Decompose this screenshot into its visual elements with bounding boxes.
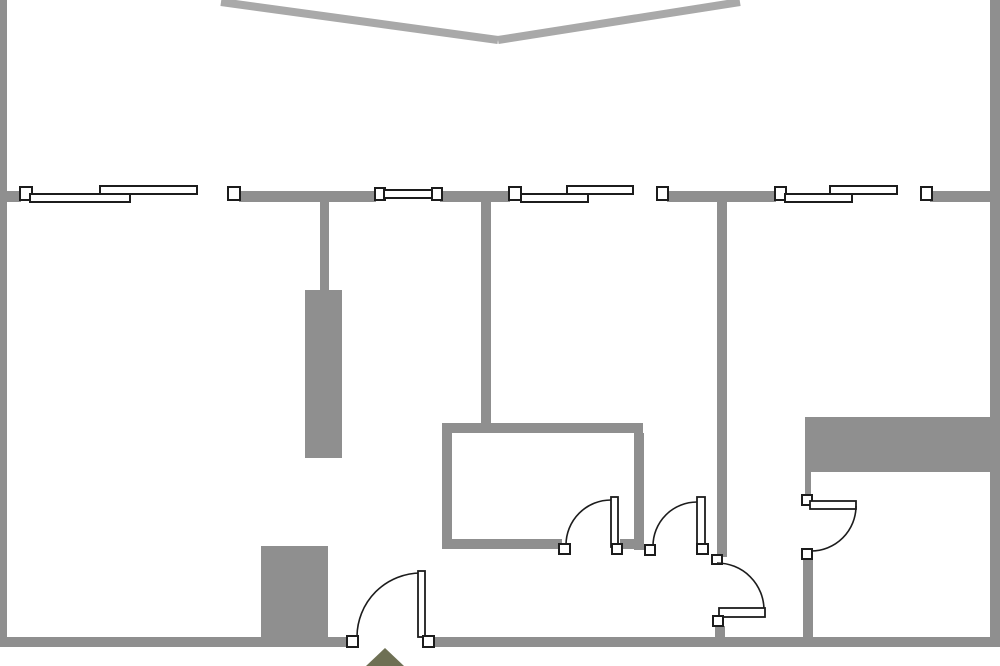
door-3-leaf[interactable] [697,497,705,547]
door-5-jamb-bottom[interactable] [802,549,812,559]
window-3-pane-lower[interactable] [521,194,588,202]
wall-bottom-west [0,637,349,647]
wall-front-b [440,191,510,202]
wall-exterior-right [990,0,1000,647]
window-4-pane-upper[interactable] [830,186,897,194]
terrace-edge-right [498,2,740,40]
door-2-jamb-right[interactable] [612,544,622,554]
door-4-swing[interactable] [717,563,764,610]
room-wall-top [442,423,643,433]
wall-interior-c [717,202,727,557]
column-block[interactable] [305,290,342,458]
wall-right-door-lower [803,558,813,637]
closet-stub [805,472,811,496]
wall-front-a [239,191,376,202]
door-1-swing[interactable] [357,573,421,637]
wall-front-d [930,191,1000,202]
window-3-cap-left[interactable] [509,187,521,200]
room-wall-right [634,433,644,550]
door-3-swing[interactable] [653,502,697,546]
door-1-jamb-right[interactable] [423,636,434,647]
door-1-leaf[interactable] [418,571,425,637]
wall-interior-c-stub [715,626,725,637]
window-2-cap-right[interactable] [432,188,442,200]
window-1-cap-right[interactable] [228,187,240,200]
door-3-jamb-left[interactable] [645,545,655,555]
door-1-jamb-left[interactable] [347,636,358,647]
window-1-pane-lower[interactable] [30,194,130,202]
closet-block[interactable] [805,417,990,472]
room-wall-bottom-west [452,539,562,549]
door-5-swing[interactable] [811,506,856,551]
window-4-cap-right[interactable] [921,187,932,200]
storage-block[interactable] [261,546,328,637]
window-1-pane-upper[interactable] [100,186,197,194]
terrace-edge-left [221,2,498,40]
door-2-jamb-left[interactable] [559,544,570,554]
wall-front-c [667,191,776,202]
door-5-leaf[interactable] [810,501,856,509]
wall-bottom-east [430,637,1000,647]
floorplan-svg [0,0,1000,666]
door-4-jamb-bottom[interactable] [713,616,723,626]
floorplan-canvas [0,0,1000,666]
door-2-swing[interactable] [566,500,611,545]
wall-interior-a [320,202,329,291]
door-2-leaf[interactable] [611,497,618,547]
door-4-leaf[interactable] [719,608,765,617]
wall-exterior-left [0,0,7,647]
window-4-pane-lower[interactable] [785,194,852,202]
room-wall-left [442,433,452,549]
wall-front-stub [0,191,21,202]
window-3-cap-right[interactable] [657,187,668,200]
window-2-glass[interactable] [384,190,433,198]
window-3-pane-upper[interactable] [567,186,633,194]
entrance-marker[interactable] [366,648,404,666]
wall-interior-b [481,202,491,423]
door-3-jamb-right[interactable] [697,544,708,554]
